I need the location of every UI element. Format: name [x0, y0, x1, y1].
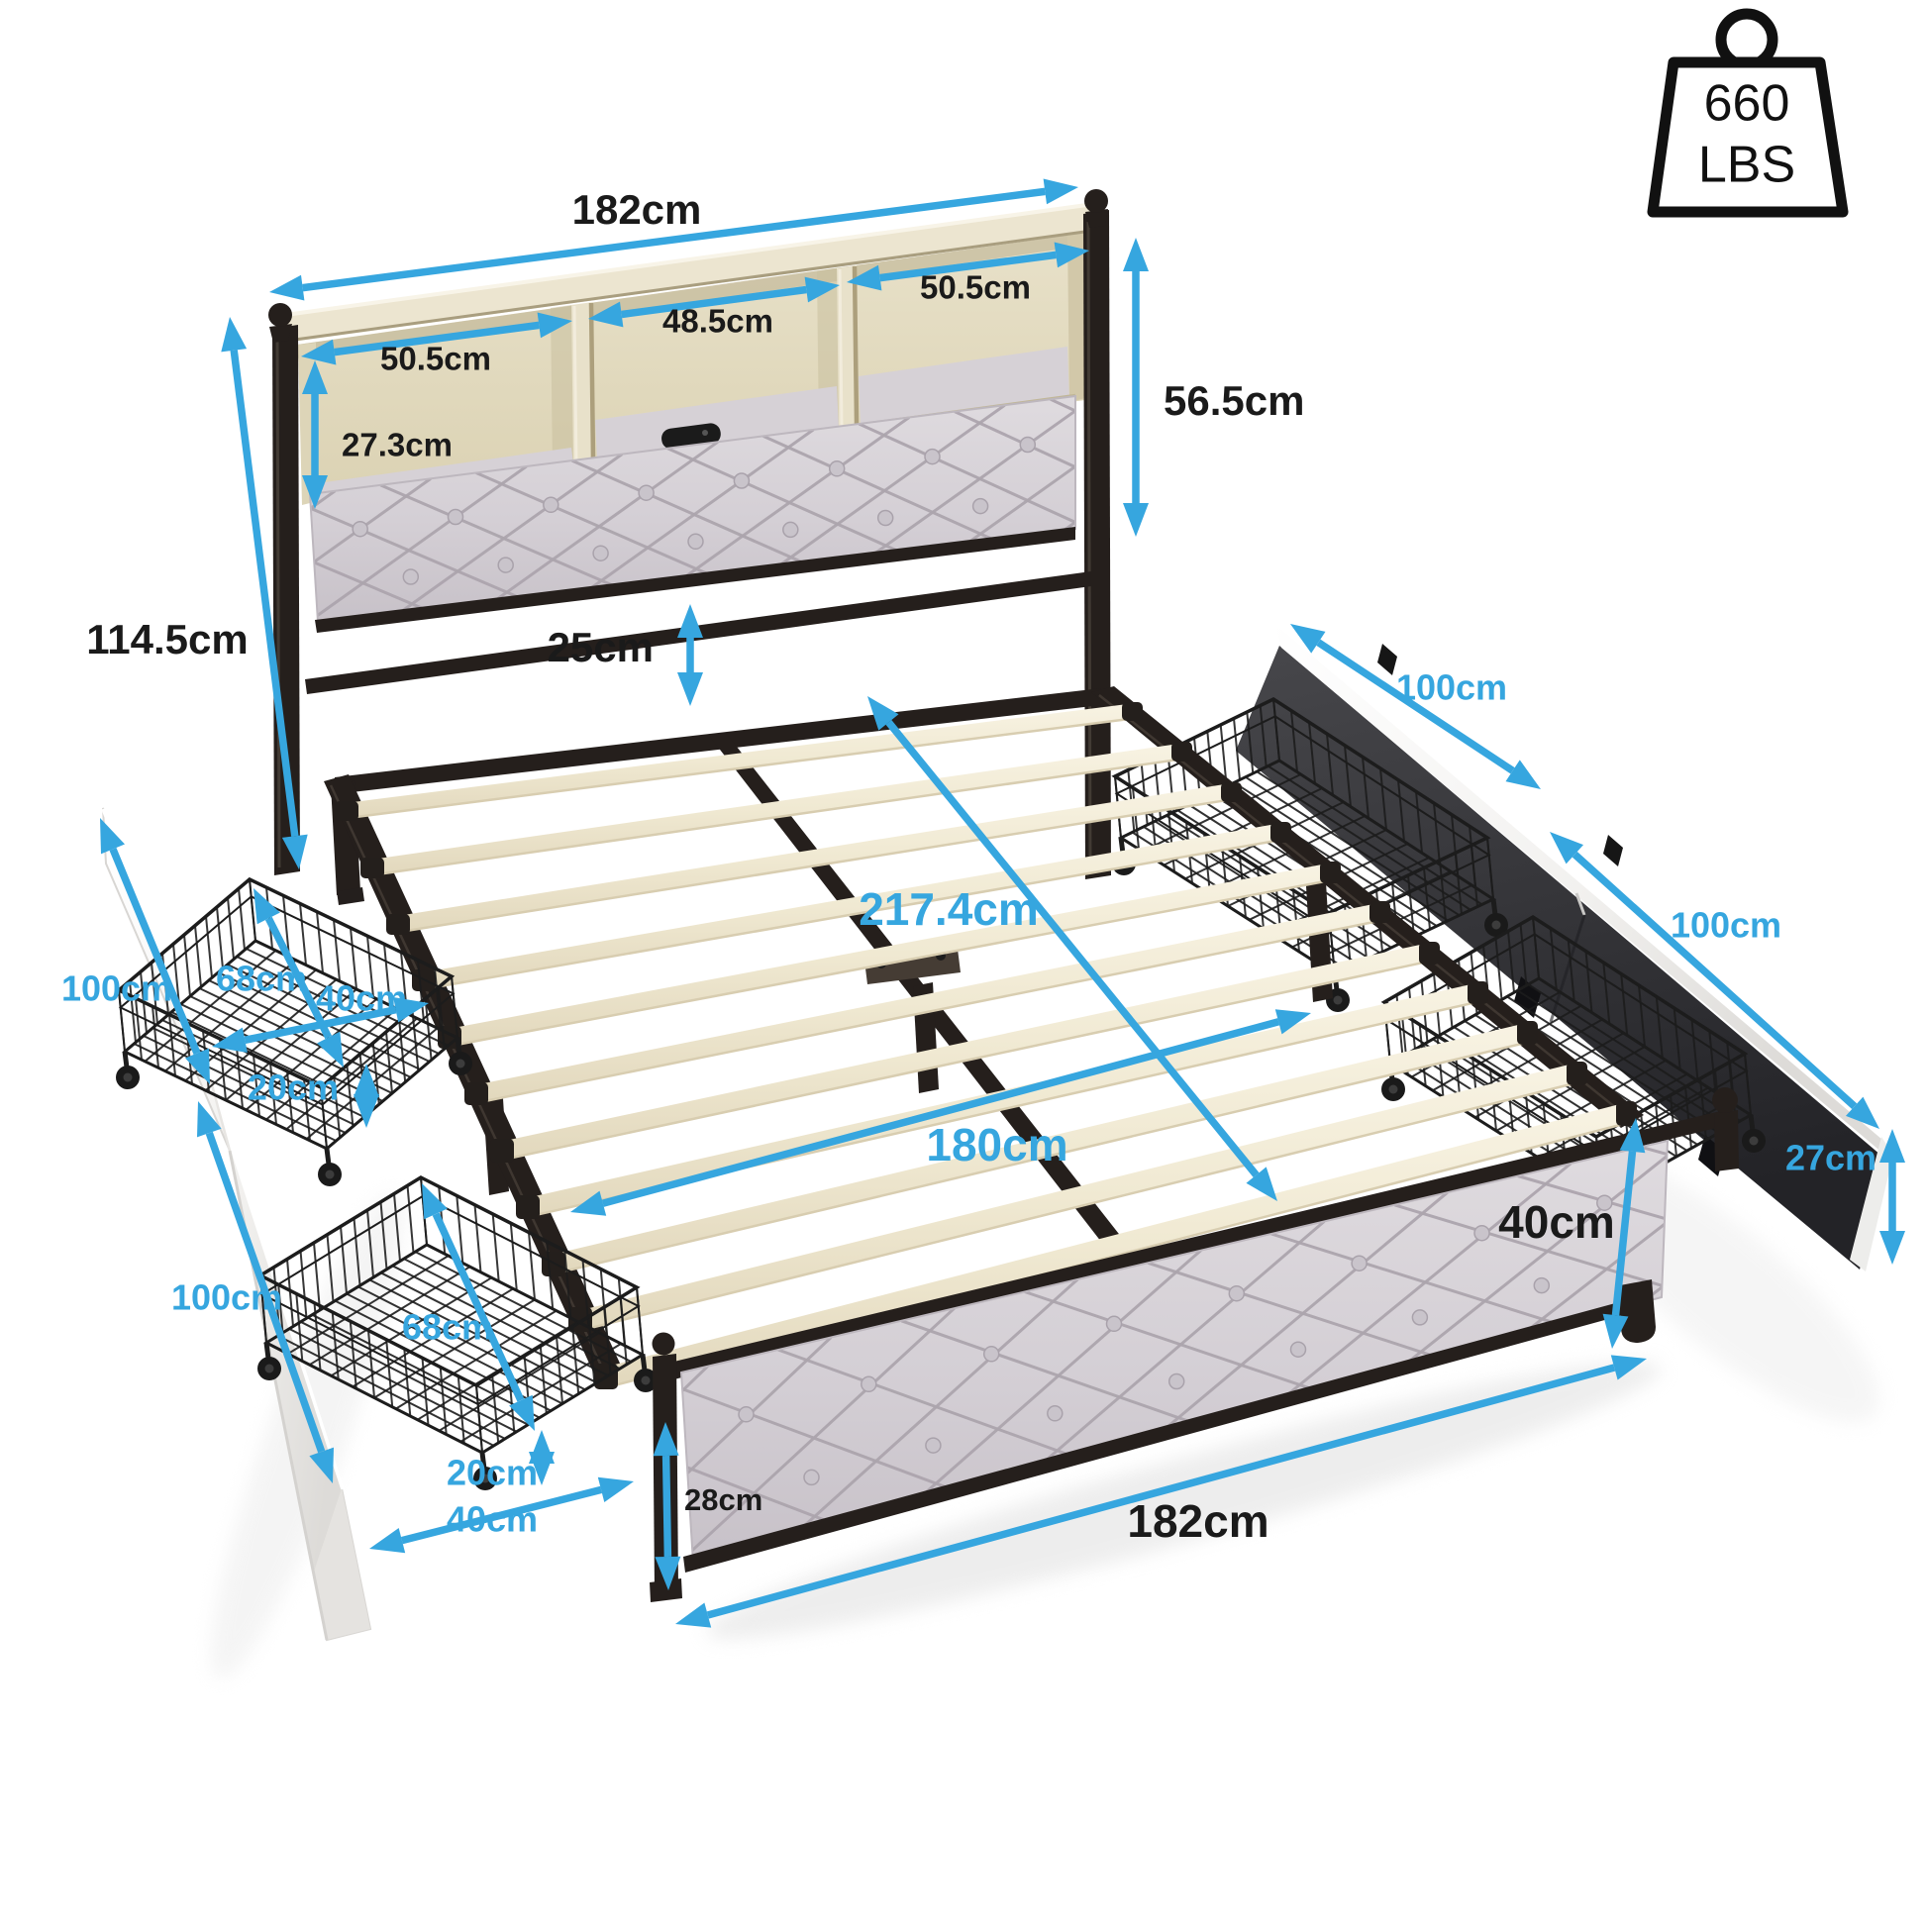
- svg-text:100cm: 100cm: [171, 1277, 282, 1318]
- svg-text:20cm: 20cm: [447, 1453, 538, 1493]
- svg-text:40cm: 40cm: [316, 978, 407, 1019]
- svg-text:100cm: 100cm: [61, 968, 172, 1009]
- svg-text:27.3cm: 27.3cm: [342, 427, 453, 463]
- svg-text:100cm: 100cm: [1671, 905, 1781, 946]
- svg-text:40cm: 40cm: [447, 1499, 538, 1540]
- svg-text:217.4cm: 217.4cm: [859, 883, 1039, 935]
- svg-text:182cm: 182cm: [572, 186, 702, 233]
- svg-text:114.5cm: 114.5cm: [86, 616, 249, 662]
- svg-text:182cm: 182cm: [1127, 1495, 1268, 1547]
- svg-text:68cm: 68cm: [402, 1307, 493, 1348]
- svg-text:56.5cm: 56.5cm: [1164, 377, 1304, 424]
- svg-text:180cm: 180cm: [926, 1119, 1067, 1170]
- svg-text:68cm: 68cm: [216, 959, 307, 999]
- svg-text:LBS: LBS: [1698, 137, 1795, 194]
- svg-text:40cm: 40cm: [1498, 1196, 1615, 1248]
- svg-text:100cm: 100cm: [1396, 667, 1507, 708]
- svg-text:27cm: 27cm: [1785, 1138, 1876, 1178]
- svg-text:660: 660: [1704, 75, 1790, 133]
- svg-text:28cm: 28cm: [684, 1482, 762, 1517]
- svg-text:25cm: 25cm: [548, 624, 654, 670]
- svg-text:50.5cm: 50.5cm: [920, 269, 1031, 306]
- svg-text:50.5cm: 50.5cm: [380, 341, 491, 377]
- svg-text:20cm: 20cm: [248, 1068, 339, 1108]
- svg-text:48.5cm: 48.5cm: [662, 303, 773, 340]
